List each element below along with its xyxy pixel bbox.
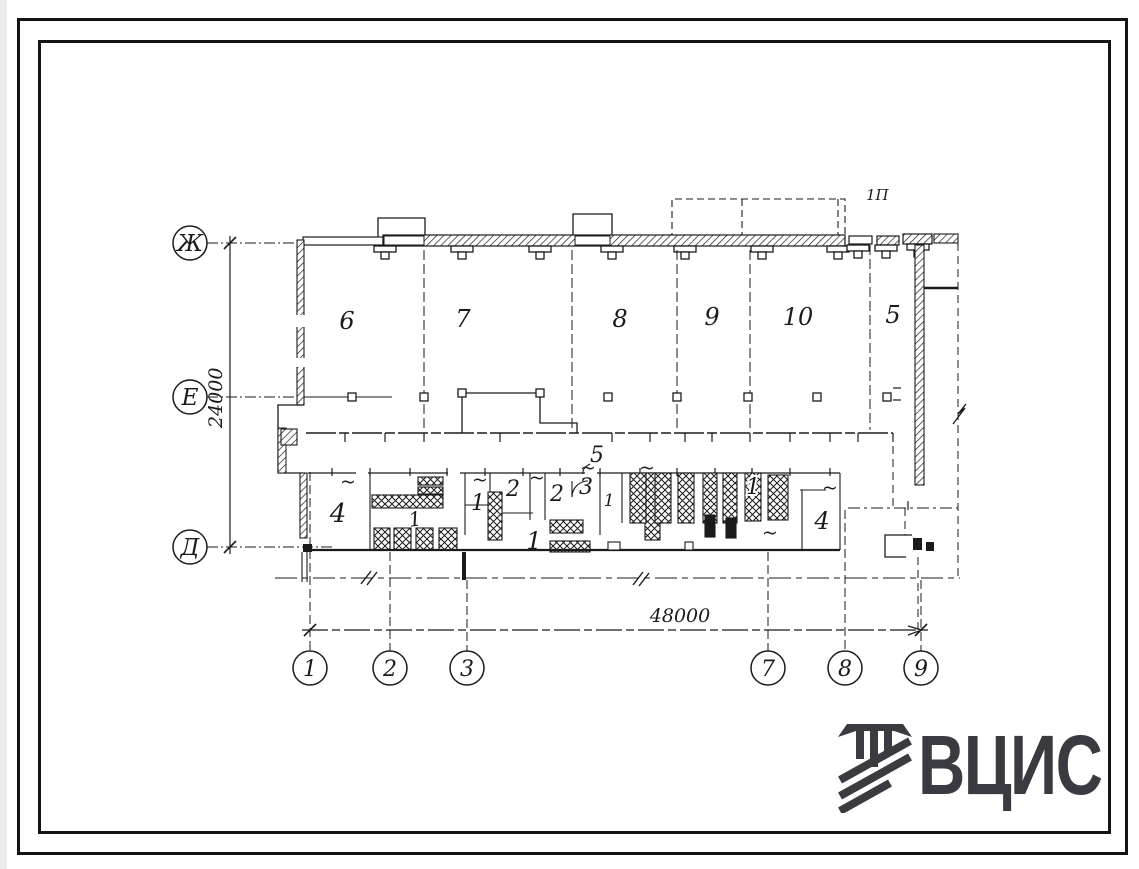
hall-bottom-wall [306, 433, 893, 442]
right-yard [848, 433, 958, 630]
svg-text:~: ~ [340, 471, 356, 493]
canopy-label: 1П [866, 186, 890, 204]
axis-label-d: Д [180, 535, 201, 561]
dimension-width-label: 48000 [649, 605, 710, 627]
axis-label-2: 2 [382, 657, 397, 682]
right-gallery [893, 234, 966, 578]
room-label-10: 10 [783, 303, 814, 331]
annex-label-1c: 1 [526, 527, 541, 555]
axis-label-1: 1 [303, 657, 317, 682]
top-wall [303, 234, 932, 246]
annex-label-1b: 1 [471, 491, 485, 516]
svg-text:~: ~ [639, 457, 655, 479]
annex-label-1d: 1 [604, 491, 615, 511]
left-wall [278, 240, 312, 582]
vcis-logo: ВЦИС [838, 718, 1139, 813]
axis-label-3: 3 [460, 657, 474, 682]
vcis-logo-icon [838, 718, 914, 813]
svg-text:~: ~ [762, 522, 778, 544]
annex-label-4-right: 4 [813, 507, 829, 535]
axis-label-8: 8 [838, 657, 852, 682]
site-boundary-line [275, 571, 960, 586]
axis-label-e: Е [181, 385, 199, 411]
annex-label-2b: 2 [549, 482, 564, 507]
horizontal-dimension [302, 624, 928, 636]
dimension-height-label: 24000 [205, 368, 227, 429]
axis-label-9: 9 [914, 657, 928, 682]
svg-text:~: ~ [822, 477, 838, 499]
hall-columns-mid [348, 389, 891, 401]
room-label-5: 5 [885, 301, 900, 329]
axis-label-7: 7 [761, 657, 775, 682]
hall-inner-room [462, 393, 577, 433]
annex-label-1a: 1 [407, 506, 423, 532]
svg-text:~: ~ [580, 457, 596, 479]
room-label-9: 9 [704, 303, 719, 331]
room-label-7: 7 [455, 305, 471, 333]
svg-text:~: ~ [529, 467, 545, 489]
axis-label-zh: Ж [175, 231, 204, 257]
room-label-8: 8 [612, 305, 627, 333]
annex-label-2a: 2 [505, 477, 520, 502]
vcis-logo-text: ВЦИС [918, 723, 1101, 807]
annex-label-4-left: 4 [329, 499, 347, 529]
canopy-dashed-outline [672, 199, 845, 240]
svg-text:~: ~ [472, 469, 488, 491]
room-label-6: 6 [339, 307, 354, 335]
annex-label-1e: 1 [746, 475, 760, 500]
hall-partitions [424, 245, 870, 430]
